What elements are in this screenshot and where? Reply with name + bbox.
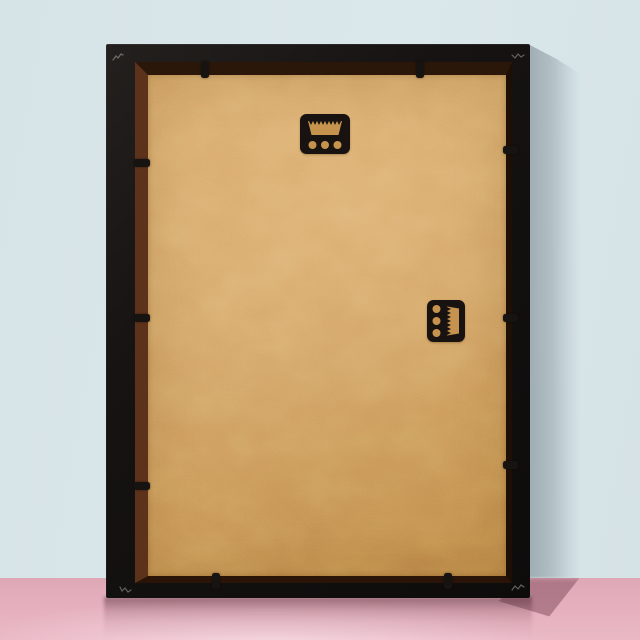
retaining-tab-right-1 — [503, 146, 518, 154]
hanger-screw-hole — [433, 317, 441, 325]
backing-board — [135, 62, 512, 583]
scene — [0, 0, 640, 640]
sawtooth-hanger-top-icon — [300, 114, 350, 154]
retaining-tab-right-3 — [503, 461, 518, 469]
hanger-opening — [308, 121, 342, 135]
retaining-tab-top-1 — [201, 61, 209, 78]
sawtooth-hanger-side-icon — [427, 300, 465, 342]
frame-shadow-on-wall — [528, 44, 580, 578]
corner-scuff-bottom-left-icon — [118, 584, 134, 596]
hanger-screw-hole — [433, 329, 441, 337]
corner-scuff-bottom-right-icon — [510, 582, 526, 594]
hanger-screw-hole — [309, 141, 317, 149]
picture-frame-back — [106, 44, 530, 598]
hanger-screw-hole — [433, 305, 441, 313]
retaining-tab-left-3 — [134, 482, 150, 490]
corner-scuff-top-left-icon — [111, 51, 127, 63]
retaining-tab-bottom-2 — [444, 573, 452, 589]
retaining-tab-left-1 — [134, 159, 150, 167]
hanger-screw-hole — [321, 141, 329, 149]
hanger-screw-hole — [334, 141, 342, 149]
retaining-tab-top-2 — [416, 61, 424, 78]
frame-reflection-on-floor — [104, 597, 532, 639]
retaining-tab-right-2 — [503, 314, 518, 322]
corner-scuff-top-right-icon — [510, 51, 526, 63]
retaining-tab-bottom-1 — [212, 573, 220, 589]
retaining-tab-left-2 — [134, 314, 150, 322]
